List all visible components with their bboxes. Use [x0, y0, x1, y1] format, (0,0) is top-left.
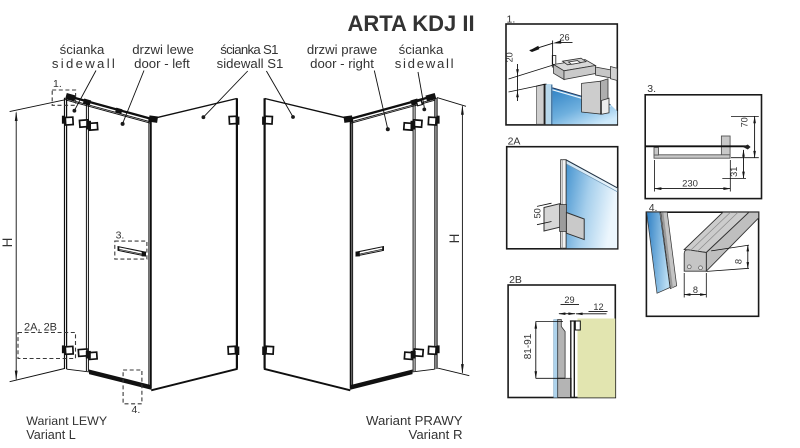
svg-text:Wariant PRAWY: Wariant PRAWY: [366, 413, 463, 428]
svg-text:sidewall S1: sidewall S1: [217, 56, 284, 71]
svg-text:81-91: 81-91: [523, 333, 534, 359]
svg-text:H: H: [447, 234, 462, 244]
svg-text:8: 8: [733, 259, 743, 265]
svg-text:3.: 3.: [647, 83, 656, 95]
svg-text:ścianka: ścianka: [399, 42, 444, 57]
svg-text:Variant L: Variant L: [26, 428, 75, 442]
svg-text:31: 31: [729, 167, 739, 177]
svg-text:door - left: door - left: [134, 56, 190, 71]
svg-text:2A, 2B: 2A, 2B: [24, 322, 57, 334]
svg-text:drzwi prawe: drzwi prawe: [307, 42, 377, 57]
svg-text:sidewall: sidewall: [52, 56, 117, 71]
svg-text:29: 29: [564, 295, 574, 305]
svg-text:4.: 4.: [132, 404, 141, 416]
svg-text:door - right: door - right: [310, 56, 374, 71]
svg-text:drzwi lewe: drzwi lewe: [132, 42, 194, 57]
svg-text:2A: 2A: [508, 135, 521, 147]
svg-text:230: 230: [682, 179, 698, 190]
svg-text:3.: 3.: [116, 230, 125, 242]
svg-text:ścianka: ścianka: [60, 42, 105, 57]
svg-text:70: 70: [739, 117, 749, 127]
svg-text:sidewall: sidewall: [395, 56, 456, 71]
svg-text:ARTA KDJ II: ARTA KDJ II: [347, 11, 474, 36]
svg-text:50: 50: [533, 208, 543, 218]
svg-text:20: 20: [505, 52, 515, 62]
svg-text:ścianka S1: ścianka S1: [220, 42, 278, 57]
svg-text:12: 12: [593, 302, 603, 312]
svg-text:H: H: [0, 238, 15, 248]
svg-text:Variant R: Variant R: [409, 427, 463, 442]
svg-text:8: 8: [693, 285, 698, 295]
svg-text:Wariant LEWY: Wariant LEWY: [26, 414, 107, 428]
svg-text:1.: 1.: [53, 78, 62, 90]
